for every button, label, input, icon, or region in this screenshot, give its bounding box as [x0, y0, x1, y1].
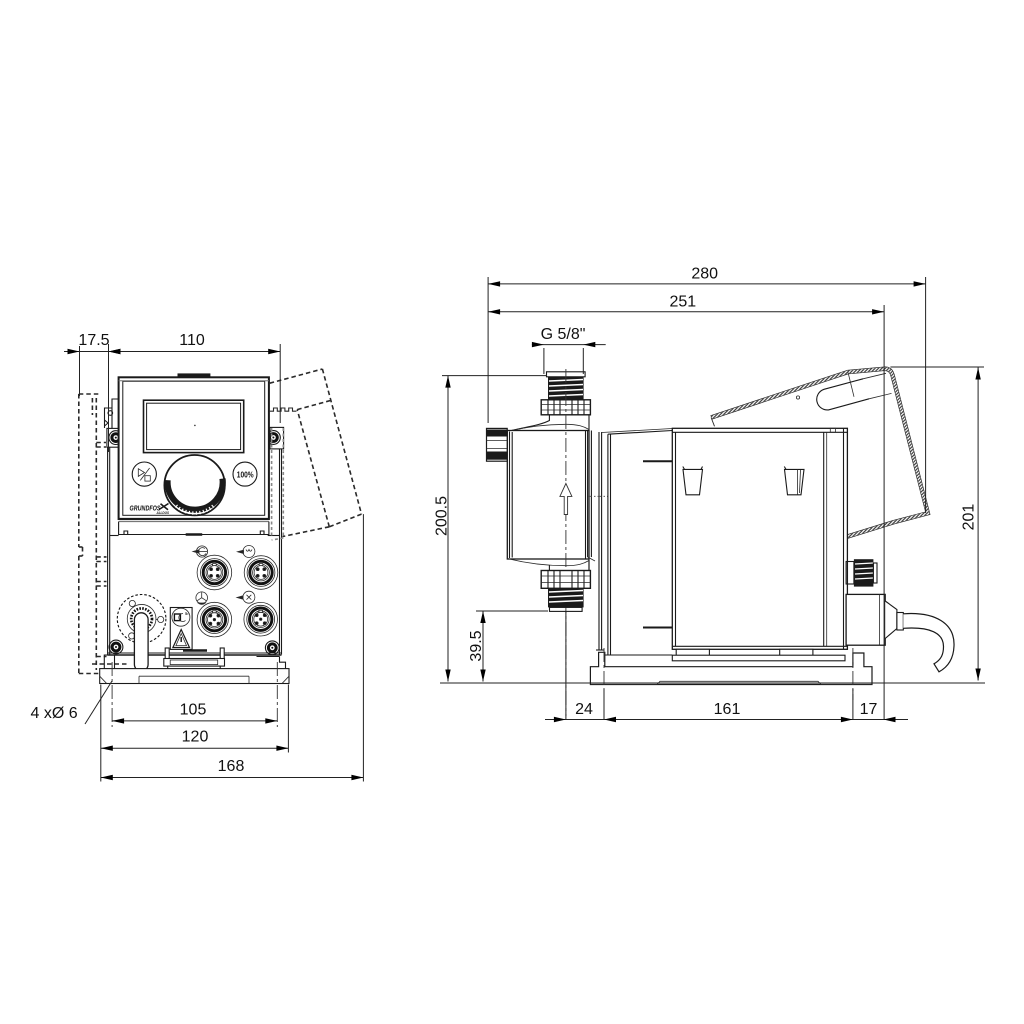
- svg-text:251: 251: [669, 293, 696, 310]
- svg-text:4 xØ 6: 4 xØ 6: [31, 705, 78, 722]
- svg-text:200.5: 200.5: [434, 496, 451, 536]
- svg-text:39.5: 39.5: [468, 630, 485, 661]
- svg-text:24: 24: [575, 701, 593, 718]
- svg-text:17.5: 17.5: [78, 332, 109, 349]
- svg-text:280: 280: [691, 266, 718, 283]
- svg-text:100%: 100%: [237, 470, 254, 479]
- svg-text:161: 161: [714, 701, 741, 718]
- svg-text:17: 17: [860, 701, 878, 718]
- svg-text:120: 120: [182, 729, 209, 746]
- svg-text:ALLDOS: ALLDOS: [156, 510, 170, 515]
- svg-text:105: 105: [180, 702, 207, 719]
- svg-text:168: 168: [218, 758, 245, 775]
- svg-text:110: 110: [179, 332, 205, 349]
- svg-text:G 5/8": G 5/8": [541, 326, 586, 343]
- svg-text:201: 201: [961, 504, 978, 531]
